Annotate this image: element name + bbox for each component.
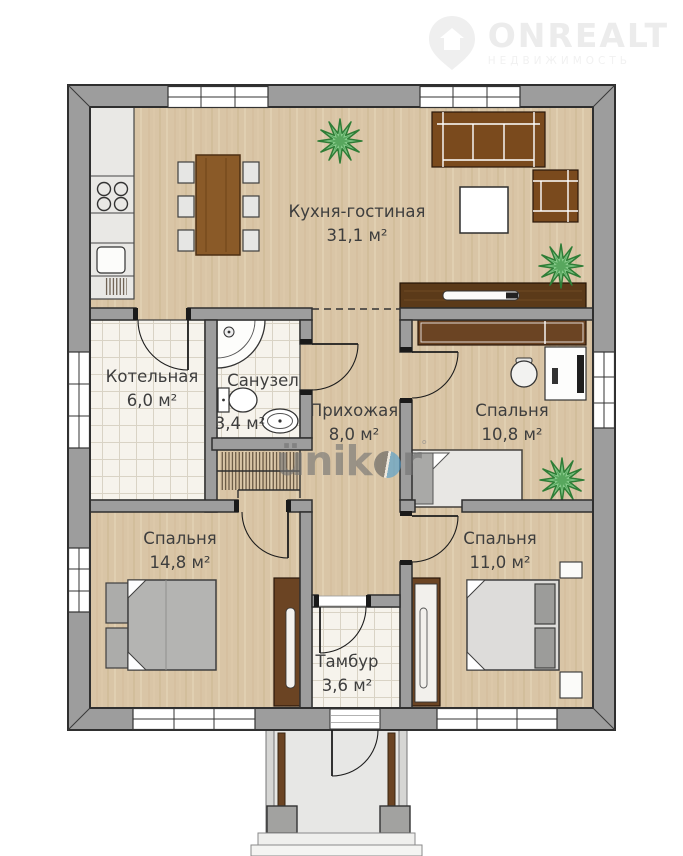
kitchen-sink — [97, 247, 125, 273]
floor-plan-page: ONREALT НЕДВИЖИМОСТЬ — [0, 0, 683, 856]
room-name: Кухня-гостиная — [289, 200, 426, 224]
nightstand — [560, 562, 582, 578]
nightstand — [560, 672, 582, 698]
bed-single — [406, 450, 522, 507]
porch-column-left — [267, 806, 297, 833]
label-bedroom2: Спальня 14,8 м² — [143, 527, 216, 575]
dining-table — [196, 155, 240, 255]
porch-step-1 — [258, 833, 415, 845]
window-bottom-left — [133, 709, 255, 730]
armchair — [533, 170, 578, 222]
room-name: Санузел — [227, 369, 299, 393]
room-name: Спальня — [143, 527, 216, 551]
label-boiler: Котельная 6,0 м² — [106, 365, 199, 413]
room-name: Спальня — [475, 399, 548, 423]
room-area: 11,0 м² — [463, 551, 536, 575]
window-top-right — [420, 87, 520, 108]
wardrobe-bedroom2 — [274, 578, 302, 706]
label-vestibule: Тамбур 3,6 м² — [315, 650, 378, 698]
room-name: Спальня — [463, 527, 536, 551]
porch-column-right — [380, 806, 410, 833]
room-area: 14,8 м² — [143, 551, 216, 575]
room-area: 10,8 м² — [475, 423, 548, 447]
chair — [243, 162, 259, 183]
label-kitchen-living: Кухня-гостиная 31,1 м² — [289, 200, 426, 248]
window-left-boiler — [69, 352, 90, 448]
pillow — [535, 584, 555, 624]
monitor — [577, 355, 584, 393]
label-bedroom1: Спальня 10,8 м² — [475, 399, 548, 447]
pillow — [535, 628, 555, 668]
room-area: 31,1 м² — [289, 224, 426, 248]
room-area: 3,6 м² — [315, 674, 378, 698]
dining-set — [178, 155, 259, 255]
window-top-left — [168, 87, 268, 108]
room-name: Котельная — [106, 365, 199, 389]
wardrobe-bedroom1 — [418, 320, 586, 345]
tv-detail — [506, 293, 518, 299]
dish-drainer — [104, 278, 127, 295]
chair — [178, 230, 194, 251]
room-area: 3,4 м² — [215, 412, 266, 436]
room-area: 6,0 м² — [106, 389, 199, 413]
label-bedroom3: Спальня 11,0 м² — [463, 527, 536, 575]
porch-step-2 — [251, 845, 422, 856]
porch-post-right — [388, 733, 395, 809]
kitchen-counter — [90, 107, 134, 299]
chair — [178, 196, 194, 217]
label-bathroom-area: 3,4 м² — [215, 412, 266, 436]
window-bottom-right — [437, 709, 557, 730]
window-left-bedroom2 — [69, 548, 90, 612]
pillow — [106, 583, 128, 623]
room-name: Прихожая — [310, 399, 398, 423]
porch — [251, 730, 422, 856]
wardrobe-bedroom3 — [412, 578, 440, 706]
coffee-table — [460, 187, 508, 233]
sofa — [432, 112, 545, 167]
label-bathroom-name: Санузел — [227, 369, 299, 393]
chair — [243, 230, 259, 251]
room-name: Тамбур — [315, 650, 378, 674]
room-area: 8,0 м² — [310, 423, 398, 447]
porch-post-left — [278, 733, 285, 809]
tv-stand — [400, 283, 586, 308]
desk — [545, 347, 586, 400]
pillow — [106, 628, 128, 668]
window-right-bedroom1 — [594, 352, 615, 428]
chair — [178, 162, 194, 183]
label-hallway: Прихожая 8,0 м² — [310, 399, 398, 447]
bathroom-sink — [262, 409, 298, 433]
chair — [243, 196, 259, 217]
